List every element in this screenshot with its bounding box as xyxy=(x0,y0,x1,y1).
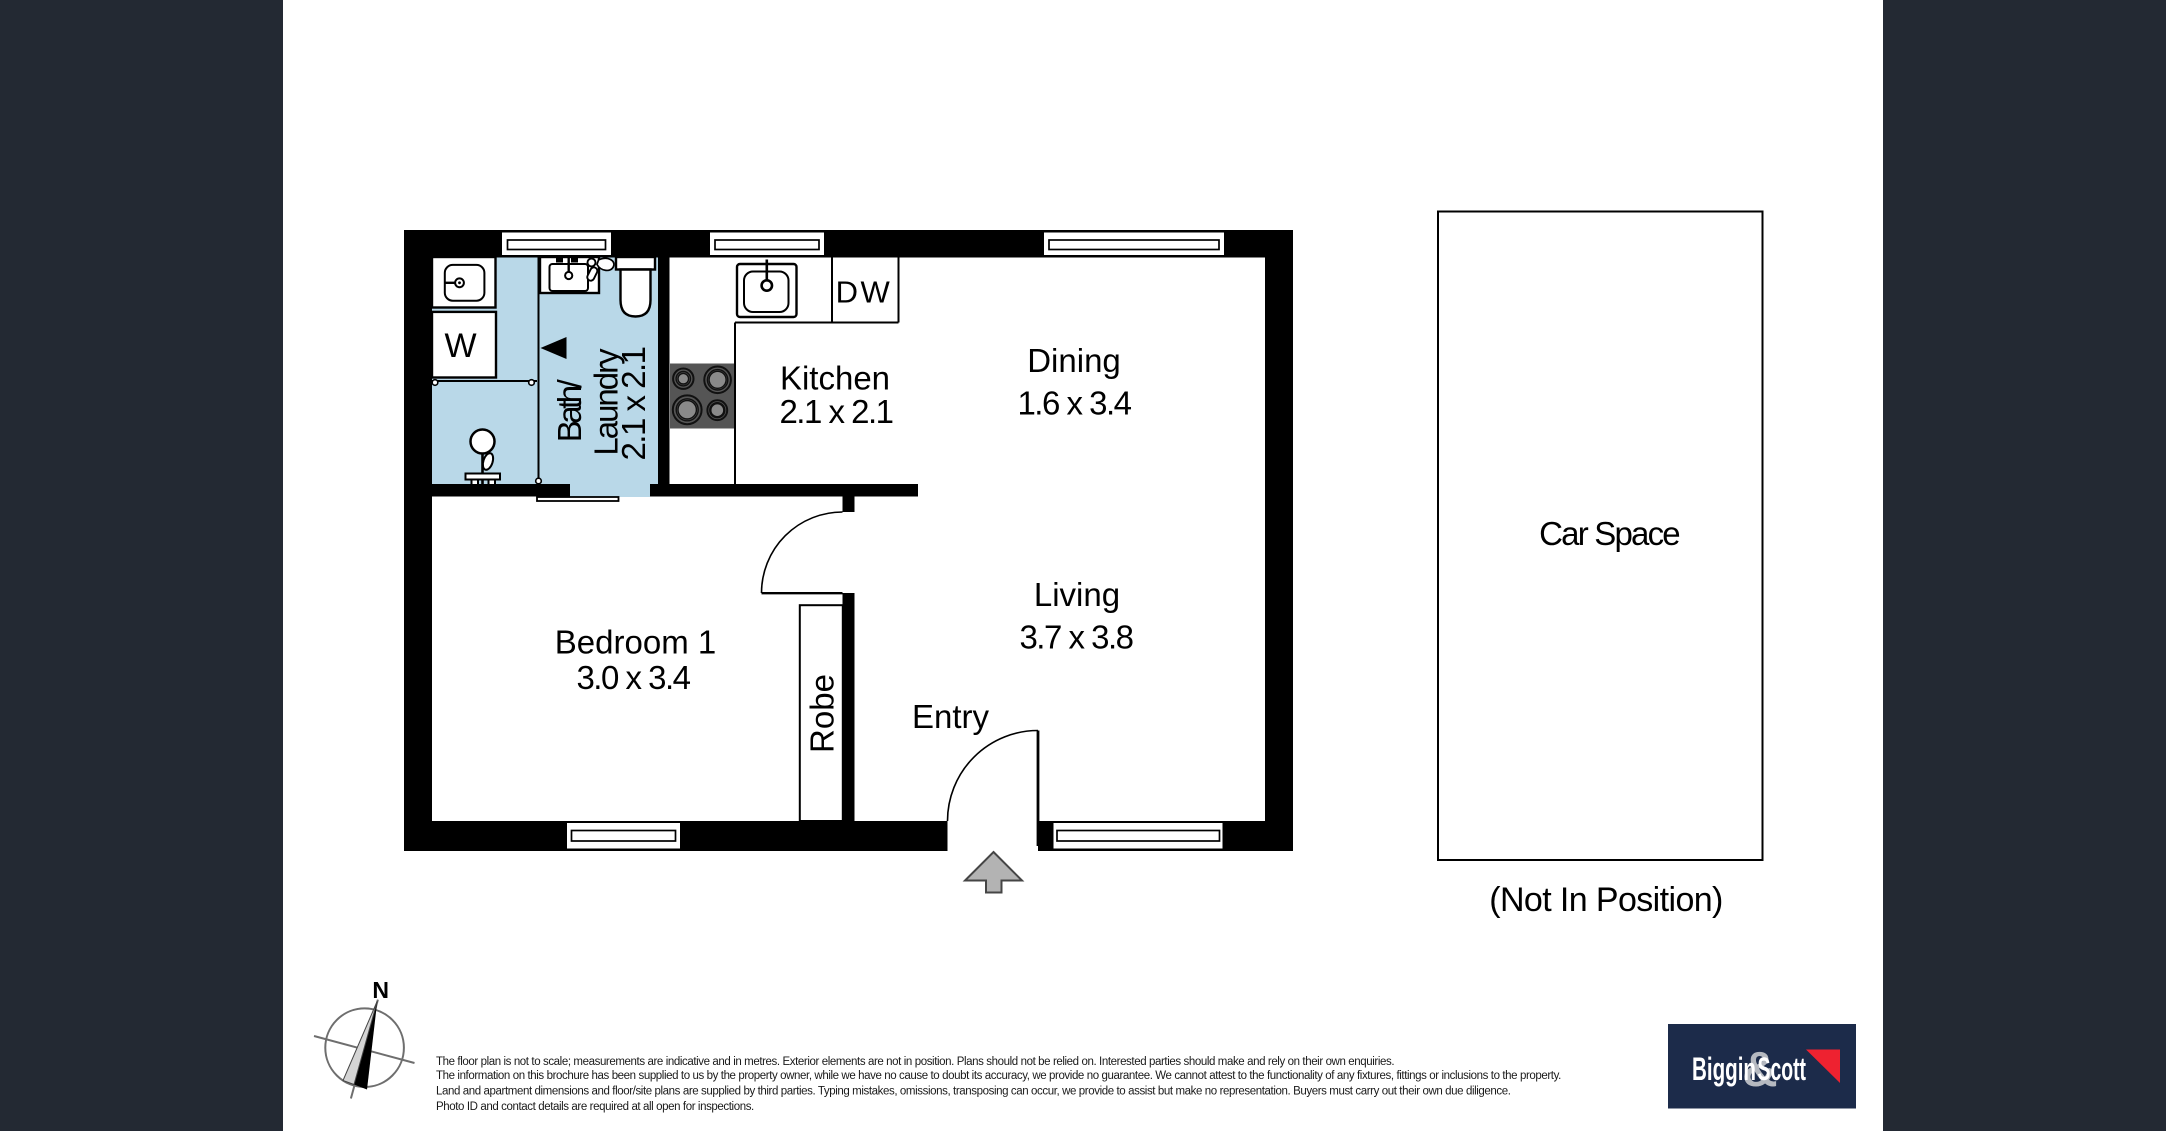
svg-text:3.7 x 3.8: 3.7 x 3.8 xyxy=(1019,619,1132,656)
svg-text:Bedroom 1: Bedroom 1 xyxy=(555,624,716,661)
svg-text:The floor plan is not to scale: The floor plan is not to scale; measurem… xyxy=(436,1056,1394,1068)
svg-text:Biggin: Biggin xyxy=(1692,1051,1756,1087)
svg-text:Robe: Robe xyxy=(804,674,841,753)
svg-text:Car Space: Car Space xyxy=(1539,515,1679,552)
svg-text:N: N xyxy=(372,977,389,1003)
svg-text:Living: Living xyxy=(1034,576,1120,613)
svg-text:Photo ID and contact details a: Photo ID and contact details are require… xyxy=(436,1101,754,1113)
svg-text:1.6 x 3.4: 1.6 x 3.4 xyxy=(1017,385,1131,422)
svg-text:The information on this brochu: The information on this brochure has bee… xyxy=(436,1070,1561,1082)
svg-text:Entry: Entry xyxy=(912,698,990,735)
svg-text:Bath/: Bath/ xyxy=(551,378,588,442)
svg-text:Land and apartment dimensions: Land and apartment dimensions and floor/… xyxy=(436,1086,1511,1098)
svg-text:2.1 x 2.1: 2.1 x 2.1 xyxy=(779,393,892,430)
svg-text:Kitchen: Kitchen xyxy=(780,360,890,397)
svg-text:3.0 x 3.4: 3.0 x 3.4 xyxy=(576,659,690,696)
svg-text:2.1 x 2.1: 2.1 x 2.1 xyxy=(615,347,652,460)
svg-text:Scott: Scott xyxy=(1758,1051,1807,1087)
svg-text:DW: DW xyxy=(836,275,893,310)
svg-text:Dining: Dining xyxy=(1027,342,1121,379)
svg-text:(Not In Position): (Not In Position) xyxy=(1489,881,1723,919)
svg-text:W: W xyxy=(444,327,476,365)
